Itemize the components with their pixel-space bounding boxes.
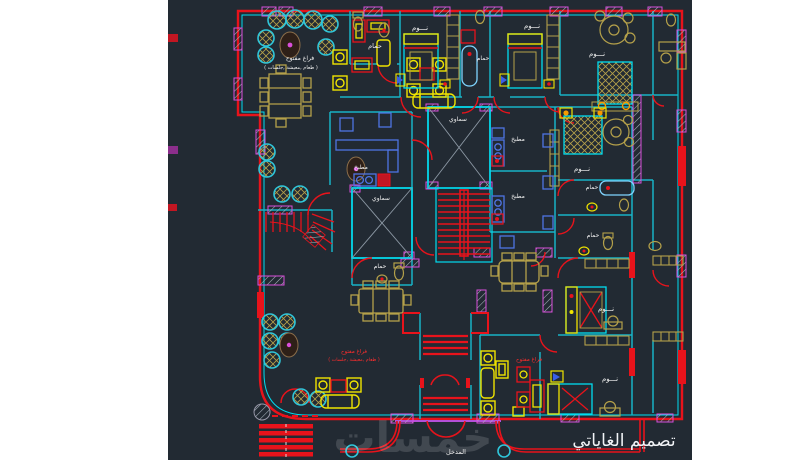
label-open-space-2: فراغ مفتوح <box>341 349 367 355</box>
label-open-space-1b: ( طعام ,معيشة ,جلسات ) <box>264 65 318 71</box>
cad-canvas: فراغ مفتوح ( طعام ,معيشة ,جلسات ) حمام ن… <box>0 0 800 460</box>
label-open-space-3: فراغ مفتوح <box>516 357 542 363</box>
label-bed-top-2: نـــوم <box>524 22 540 30</box>
label-skylight-top: سماوي <box>449 116 467 123</box>
label-bath-top-left: حمام <box>368 42 382 50</box>
label-kitchen-right-1: مطبخ <box>511 136 525 143</box>
watermark: خمسات <box>333 413 492 460</box>
label-bed-top-right: نـــوم <box>589 50 605 58</box>
label-bed-right-2: نـــوم <box>574 165 590 173</box>
label-bed-top-1: نـــوم <box>412 24 428 32</box>
label-bath-right-1: حمام <box>586 184 599 191</box>
bed-top-right <box>592 62 638 111</box>
label-kitchen-left: مطبخ <box>354 164 368 171</box>
label-bed-right-4: نـــوم <box>602 375 618 383</box>
label-open-space-1: فراغ مفتوح <box>286 55 314 62</box>
label-bed-right-3: نـــوم <box>598 305 614 313</box>
label-bath-left: حمام <box>374 263 387 270</box>
label-skylight-left: سماوي <box>372 195 390 202</box>
label-bath-top-center: حمام <box>477 55 490 62</box>
signature: تصميم الغاياتي <box>572 431 676 451</box>
label-bath-right-2: حمام <box>587 232 600 239</box>
label-open-space-2b: ( طعام ,معيشة ,جلسات ) <box>328 357 380 363</box>
label-kitchen-right-2: مطبخ <box>511 193 525 200</box>
floorplan-svg: فراغ مفتوح ( طعام ,معيشة ,جلسات ) حمام ن… <box>0 0 800 460</box>
